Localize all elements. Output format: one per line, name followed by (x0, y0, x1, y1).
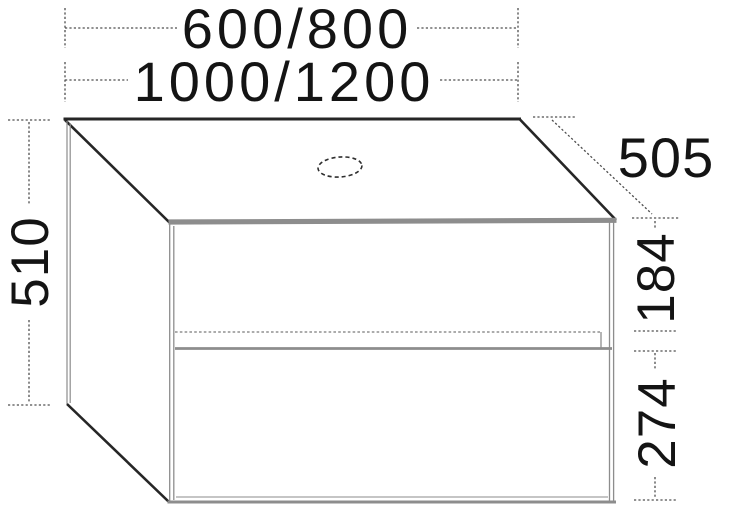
dim-drawer2-label: 274 (628, 377, 687, 468)
drain-hole-ellipse (317, 155, 362, 178)
dim-width-row2-label: 1000/1200 (134, 50, 435, 113)
edge-top-slab-front (169, 220, 617, 222)
cabinet-dimension-diagram: 600/800 1000/1200 505 510 184 274 (0, 0, 734, 508)
cabinet-drawing (64, 119, 617, 502)
technical-drawing-page: 600/800 1000/1200 505 510 184 274 (0, 0, 734, 508)
dim-depth-label: 505 (618, 126, 714, 189)
dim-drawer1-label: 184 (627, 232, 686, 323)
dimension-annotations: 600/800 1000/1200 505 510 184 274 (1, 0, 714, 500)
edge-top-left-diagonal (65, 120, 170, 223)
edge-top-right-diagonal (520, 119, 617, 220)
edge-bottom-left-diagonal (67, 404, 169, 502)
dim-height-label: 510 (1, 216, 60, 307)
